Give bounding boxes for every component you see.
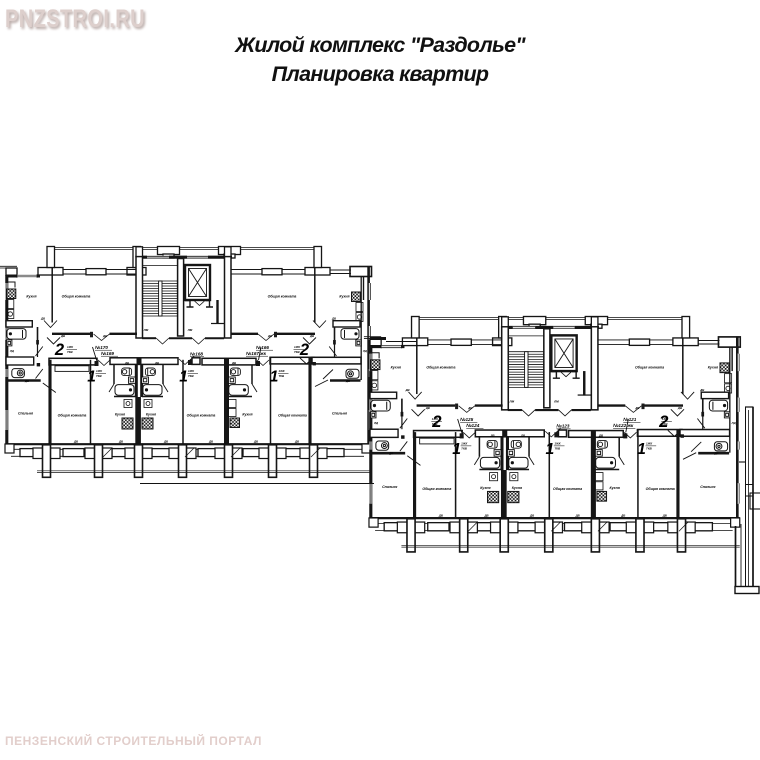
svg-text:№166: №166: [256, 345, 269, 350]
svg-text:1: 1: [87, 369, 96, 386]
svg-text:ЛД: ЛД: [731, 421, 736, 425]
svg-text:1: 1: [270, 369, 279, 386]
svg-text:ДВ: ДВ: [467, 406, 472, 410]
svg-text:ДВ: ДВ: [208, 440, 213, 444]
svg-text:ДВ: ДВ: [699, 388, 704, 392]
svg-text:ЛМ: ЛМ: [143, 328, 149, 332]
svg-text:ДВ: ДВ: [662, 513, 667, 517]
svg-text:ТКВ: ТКВ: [432, 422, 439, 426]
svg-text:1ЖК: 1ЖК: [294, 345, 300, 349]
svg-text:ТКВ: ТКВ: [294, 350, 300, 354]
svg-text:ДВ: ДВ: [309, 334, 314, 338]
svg-text:Спальня: Спальня: [700, 485, 716, 489]
svg-text:ДВ: ДВ: [118, 440, 123, 444]
svg-text:1ЖК: 1ЖК: [96, 369, 102, 373]
svg-text:ДВ: ДВ: [24, 379, 29, 383]
svg-text:ТКВ: ТКВ: [461, 447, 468, 451]
svg-text:№170: №170: [95, 345, 108, 350]
svg-text:№124: №124: [466, 423, 479, 428]
svg-text:№167 жк: №167 жк: [246, 351, 267, 356]
svg-text:1ЖК: 1ЖК: [554, 442, 560, 446]
svg-text:№168: №168: [190, 352, 203, 357]
svg-text:ДВ: ДВ: [231, 361, 236, 365]
svg-text:№125: №125: [460, 417, 473, 422]
svg-text:ДВ: ДВ: [438, 513, 443, 517]
svg-text:ДВ: ДВ: [634, 406, 639, 410]
svg-text:ДВ: ДВ: [345, 379, 350, 383]
svg-text:2: 2: [54, 341, 64, 359]
svg-text:ТКВ: ТКВ: [279, 374, 285, 378]
svg-text:Кухня: Кухня: [480, 486, 491, 490]
svg-text:№123: №123: [556, 424, 569, 429]
svg-text:Общая комната: Общая комната: [426, 366, 455, 370]
svg-text:1: 1: [545, 441, 554, 458]
svg-text:1ЖК: 1ЖК: [188, 369, 194, 373]
svg-text:Спальня: Спальня: [18, 412, 33, 416]
svg-text:ЛД: ЛД: [362, 349, 367, 353]
svg-text:ДВ: ДВ: [677, 406, 682, 410]
svg-text:Кухня: Кухня: [242, 413, 252, 417]
svg-text:Спальня: Спальня: [332, 412, 347, 416]
svg-text:Общая комната: Общая комната: [187, 414, 216, 418]
svg-text:ДВ: ДВ: [713, 452, 718, 456]
svg-text:Кухня: Кухня: [146, 413, 156, 417]
svg-text:ДВ: ДВ: [529, 513, 534, 517]
svg-text:ТКВ: ТКВ: [67, 350, 73, 354]
svg-text:Спальня: Спальня: [382, 485, 398, 489]
svg-text:ДВ: ДВ: [575, 513, 580, 517]
svg-text:1ЖК: 1ЖК: [461, 442, 467, 446]
svg-text:ТКВ: ТКВ: [662, 422, 669, 426]
svg-text:ДВ: ДВ: [404, 388, 409, 392]
svg-text:ДВ: ДВ: [163, 440, 168, 444]
svg-text:ДВ: ДВ: [388, 452, 393, 456]
svg-text:Кухня: Кухня: [708, 366, 719, 370]
svg-text:№169: №169: [101, 351, 114, 356]
svg-text:ЛД: ЛД: [9, 349, 14, 353]
svg-text:ДВ: ДВ: [598, 433, 603, 437]
svg-text:Общая комната: Общая комната: [278, 414, 307, 418]
svg-text:ДВ: ДВ: [102, 334, 107, 338]
svg-text:Общая комната: Общая комната: [646, 487, 675, 491]
svg-text:ДВ: ДВ: [267, 334, 272, 338]
svg-text:ДВ: ДВ: [253, 440, 258, 444]
svg-text:Общая комната: Общая комната: [553, 487, 582, 491]
svg-text:№121: №121: [623, 417, 636, 422]
svg-text:1ЖК: 1ЖК: [432, 417, 438, 421]
svg-text:Общая комната: Общая комната: [635, 366, 664, 370]
svg-text:Общая комната: Общая комната: [422, 487, 451, 491]
svg-text:ДВ: ДВ: [490, 433, 495, 437]
svg-text:ЛМ: ЛМ: [187, 328, 193, 332]
svg-text:ДВ: ДВ: [620, 513, 625, 517]
svg-text:1ЖК: 1ЖК: [662, 417, 668, 421]
svg-text:Общая комната: Общая комната: [268, 295, 297, 299]
svg-text:1: 1: [452, 441, 461, 458]
svg-text:ТКВ: ТКВ: [646, 447, 653, 451]
svg-text:ДВ: ДВ: [40, 317, 45, 321]
svg-text:1ЖК: 1ЖК: [67, 345, 73, 349]
svg-text:ДВ: ДВ: [294, 440, 299, 444]
svg-text:Кухня: Кухня: [391, 366, 402, 370]
svg-text:ДВ: ДВ: [73, 440, 78, 444]
svg-text:ДВ: ДВ: [331, 317, 336, 321]
svg-text:1ЖК: 1ЖК: [279, 369, 285, 373]
svg-text:ДВ: ДВ: [425, 406, 430, 410]
svg-text:Кухня: Кухня: [26, 295, 36, 299]
svg-text:ДВ: ДВ: [520, 433, 525, 437]
svg-text:1: 1: [179, 369, 188, 386]
svg-text:ДВ: ДВ: [154, 361, 159, 365]
svg-text:ЛМ: ЛМ: [553, 400, 559, 404]
svg-text:Кухня: Кухня: [115, 413, 125, 417]
svg-text:Кухня: Кухня: [609, 486, 620, 490]
svg-text:Общая комната: Общая комната: [62, 295, 91, 299]
svg-text:ДВ: ДВ: [483, 513, 488, 517]
svg-text:2: 2: [299, 341, 309, 359]
svg-text:ТКВ: ТКВ: [188, 374, 194, 378]
svg-text:ЛД: ЛД: [373, 421, 378, 425]
svg-text:ЛМ: ЛМ: [509, 400, 515, 404]
svg-text:Кухня: Кухня: [339, 295, 349, 299]
svg-text:Кухня: Кухня: [512, 486, 523, 490]
svg-text:ТКВ: ТКВ: [554, 447, 561, 451]
svg-text:1ЖК: 1ЖК: [646, 442, 652, 446]
svg-text:1: 1: [637, 441, 646, 458]
svg-text:ТКВ: ТКВ: [96, 374, 102, 378]
svg-text:ДВ: ДВ: [124, 361, 129, 365]
svg-text:№122 жк: №122 жк: [613, 423, 634, 428]
svg-text:ДВ: ДВ: [60, 334, 65, 338]
svg-text:Общая комната: Общая комната: [58, 414, 87, 418]
